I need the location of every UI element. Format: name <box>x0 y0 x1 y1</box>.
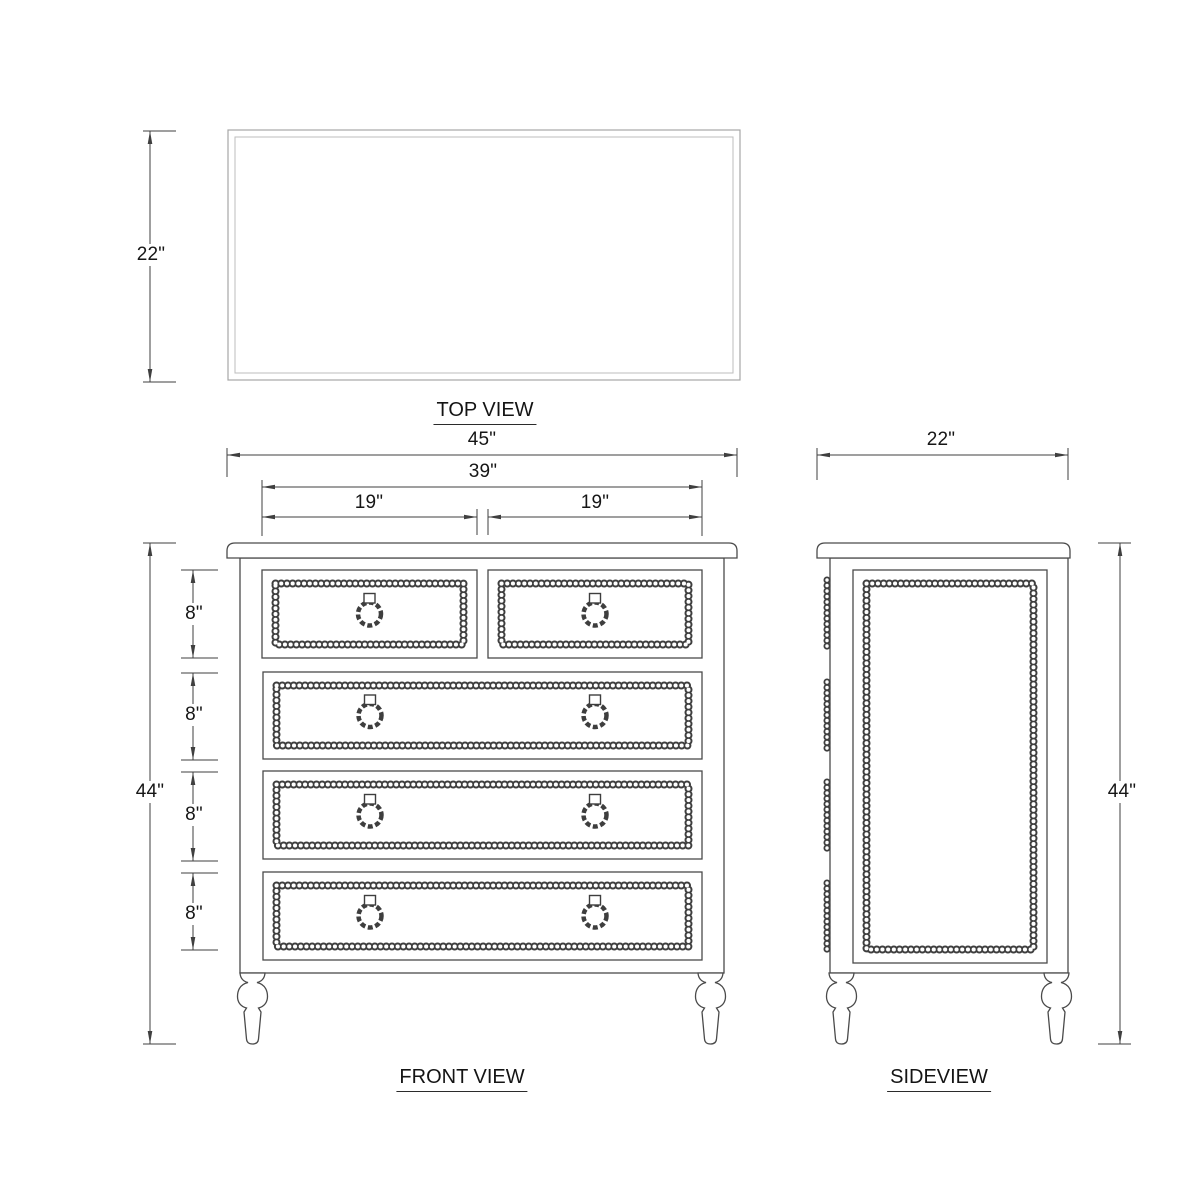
top-view-outer-outline <box>228 130 740 380</box>
front-drawer3-height-dimension-label: 8" <box>181 804 207 826</box>
front-right-drawer-dimension-label: 19" <box>581 492 609 514</box>
side-cornice <box>817 543 1070 558</box>
front-drawer-span-dimension-label: 39" <box>469 461 497 483</box>
side-view-title: SIDEVIEW <box>887 1066 991 1092</box>
front-left-drawer-dimension-label: 19" <box>355 492 383 514</box>
front-drawer1-height-dimension-label: 8" <box>181 603 207 625</box>
side-front-leg <box>827 973 857 1044</box>
side-overall-height-dimension-label: 44" <box>1104 781 1140 803</box>
front-right-leg <box>696 973 726 1044</box>
front-left-leg <box>238 973 268 1044</box>
front-view-drawing <box>227 543 737 1044</box>
top-view-title: TOP VIEW <box>433 399 536 425</box>
front-view-title: FRONT VIEW <box>396 1066 527 1092</box>
drawing-canvas <box>0 0 1200 1200</box>
side-back-leg <box>1042 973 1072 1044</box>
top-view-inner-outline <box>235 137 733 373</box>
front-drawer4-height-dimension-label: 8" <box>181 903 207 925</box>
front-overall-width-dimension-label: 45" <box>468 429 496 451</box>
side-depth-dimension-label: 22" <box>927 429 955 451</box>
top-view-drawing <box>228 130 740 380</box>
front-drawer2-height-dimension-label: 8" <box>181 704 207 726</box>
top-view-depth-dimension-label: 22" <box>133 244 169 266</box>
side-panel <box>853 570 1047 963</box>
side-view-drawing <box>817 543 1072 1044</box>
front-cornice <box>227 543 737 558</box>
front-overall-height-dimension-label: 44" <box>132 781 168 803</box>
furniture-dimension-drawing: 22" TOP VIEW 45" 39" 19" 19" 44" 8" 8" 8… <box>0 0 1200 1200</box>
